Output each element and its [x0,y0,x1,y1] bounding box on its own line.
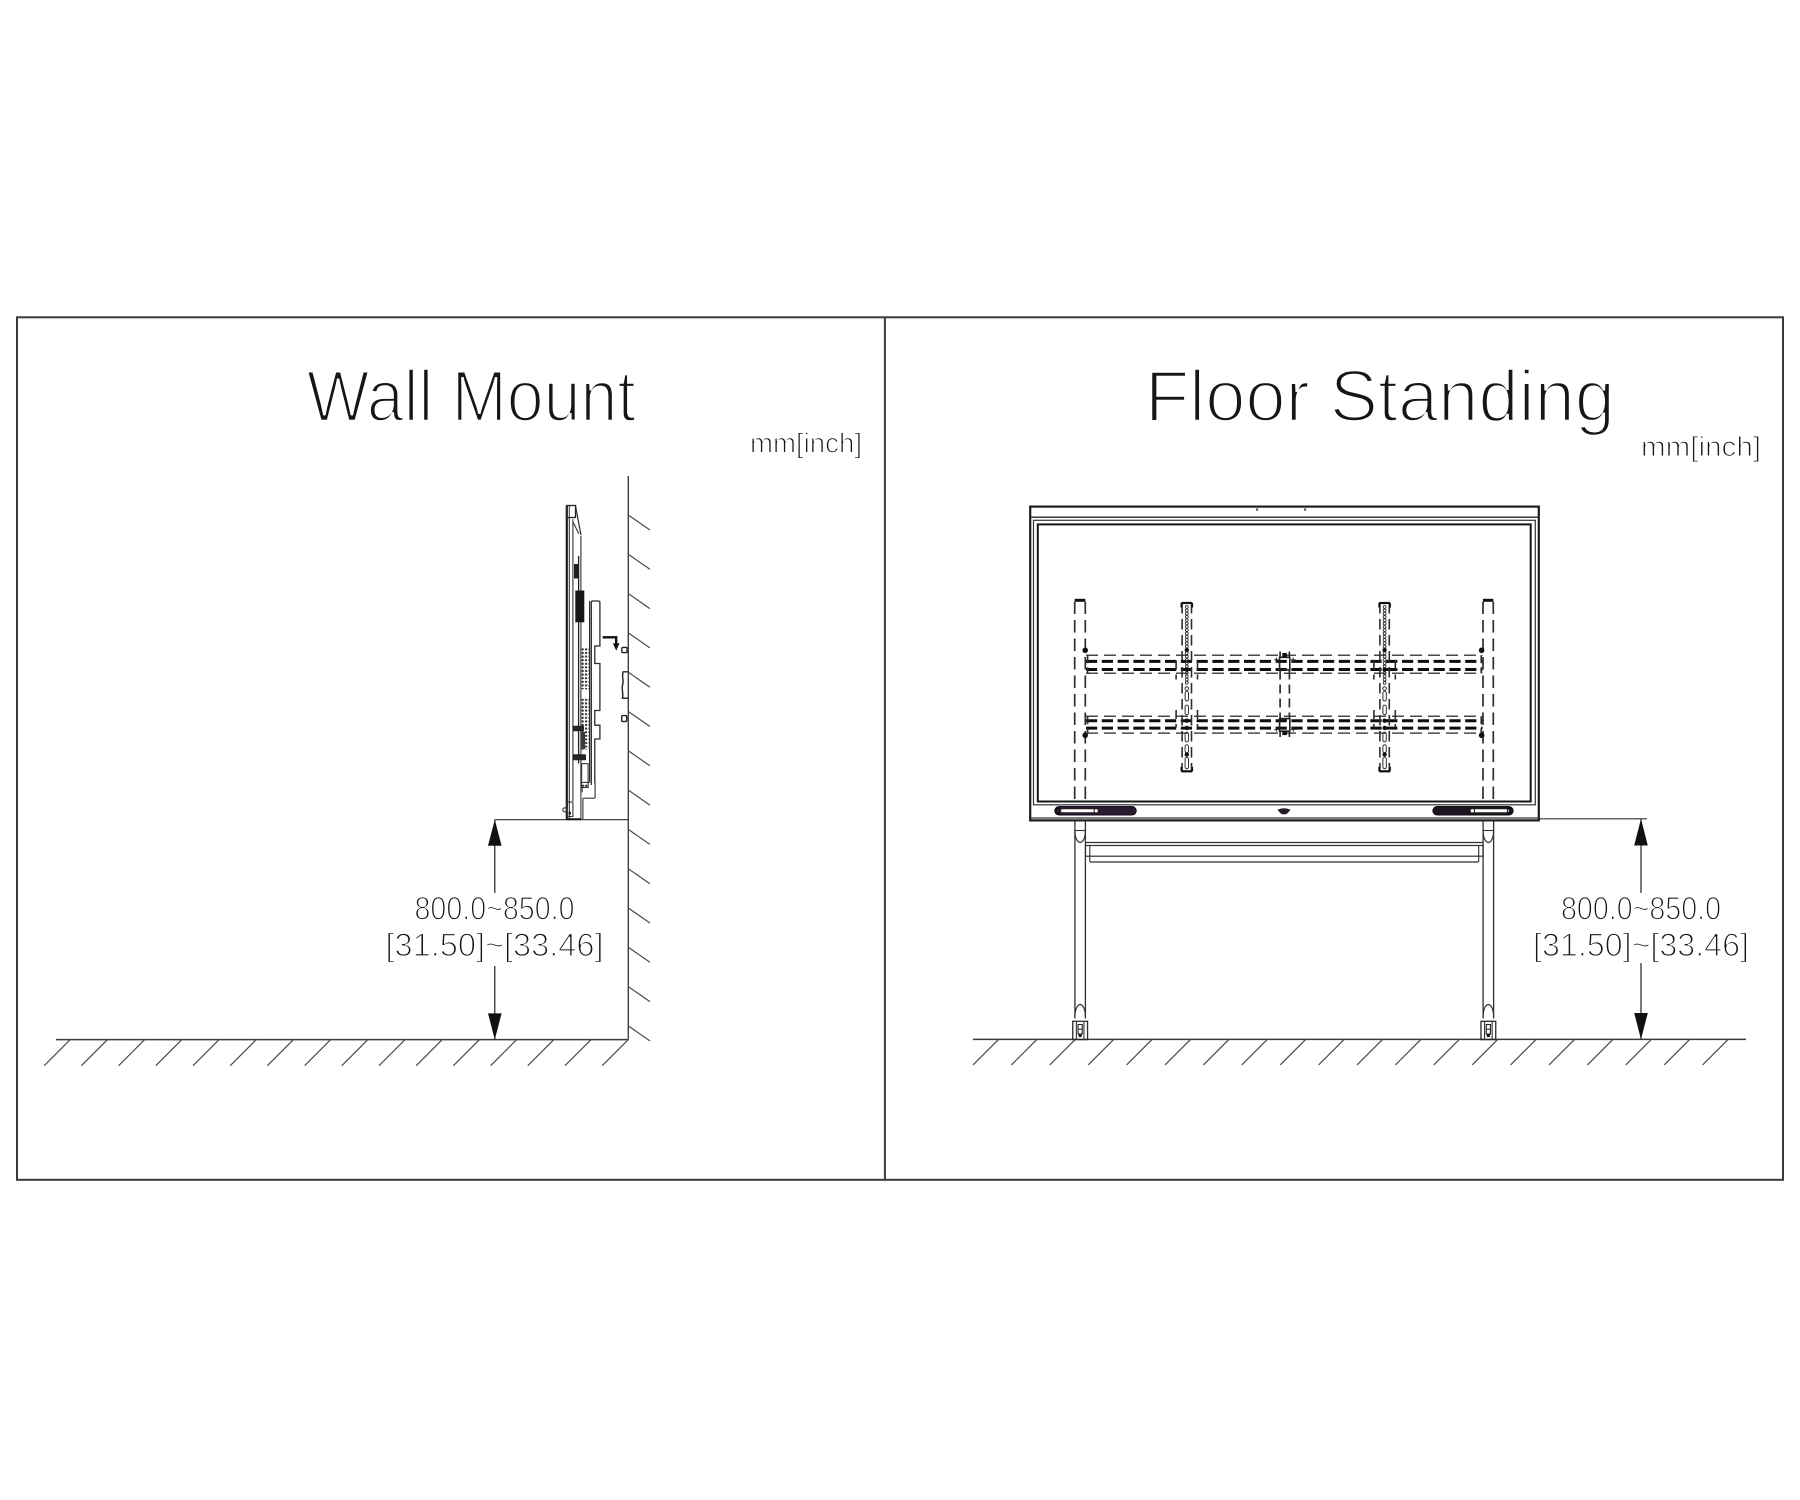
svg-text:[31.50]~[33.46]: [31.50]~[33.46] [386,927,604,963]
svg-text:mm[inch]: mm[inch] [1641,431,1761,462]
svg-text:800.0~850.0: 800.0~850.0 [1561,891,1721,927]
svg-text:Floor Standing: Floor Standing [1145,357,1615,437]
svg-text:[31.50]~[33.46]: [31.50]~[33.46] [1533,927,1749,963]
svg-text:Wall Mount: Wall Mount [307,357,636,437]
svg-text:800.0~850.0: 800.0~850.0 [415,891,575,927]
svg-text:mm[inch]: mm[inch] [750,428,862,459]
